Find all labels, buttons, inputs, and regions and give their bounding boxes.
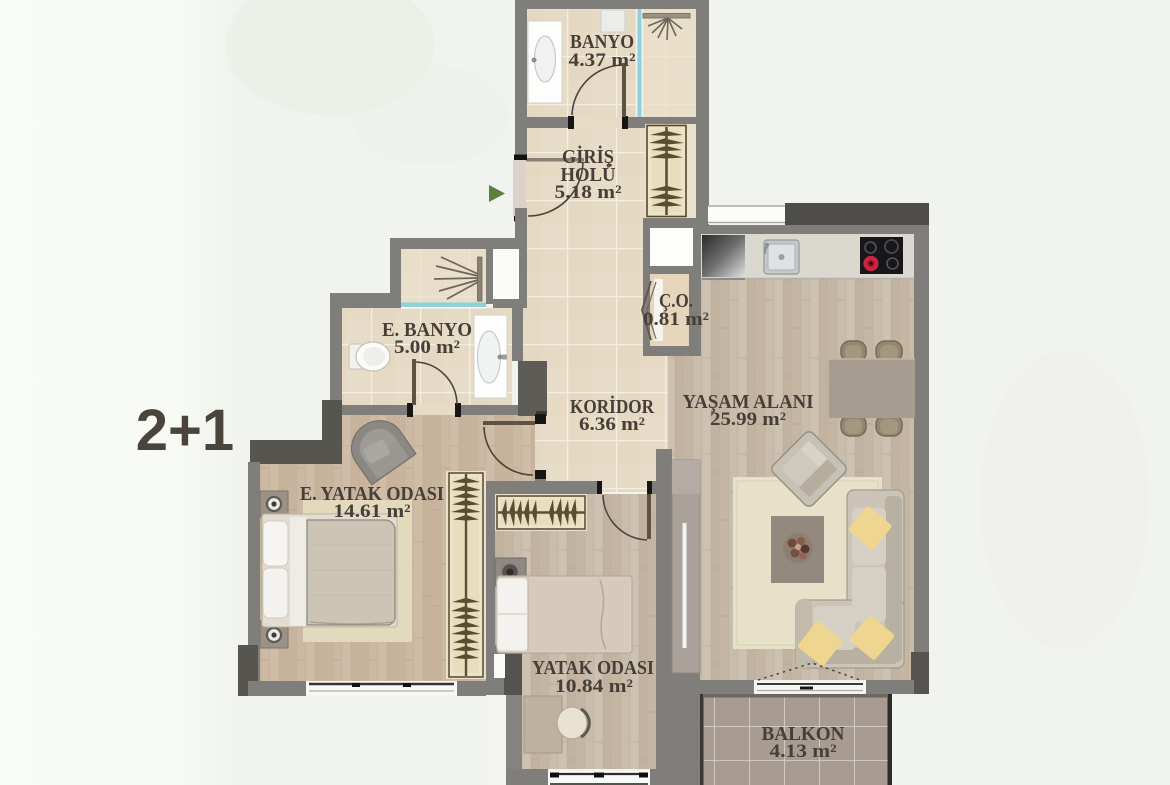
svg-text:25.99 m²: 25.99 m² — [710, 409, 786, 430]
svg-text:6.36 m²: 6.36 m² — [579, 414, 645, 435]
svg-text:4.13 m²: 4.13 m² — [770, 741, 837, 762]
svg-text:5.18 m²: 5.18 m² — [555, 182, 622, 203]
svg-text:4.37 m²: 4.37 m² — [569, 50, 636, 71]
svg-text:5.00 m²: 5.00 m² — [394, 337, 460, 358]
svg-text:0.81 m²: 0.81 m² — [643, 309, 709, 330]
svg-text:10.84 m²: 10.84 m² — [555, 676, 633, 697]
svg-text:2+1: 2+1 — [136, 398, 234, 463]
svg-text:14.61 m²: 14.61 m² — [334, 501, 411, 522]
